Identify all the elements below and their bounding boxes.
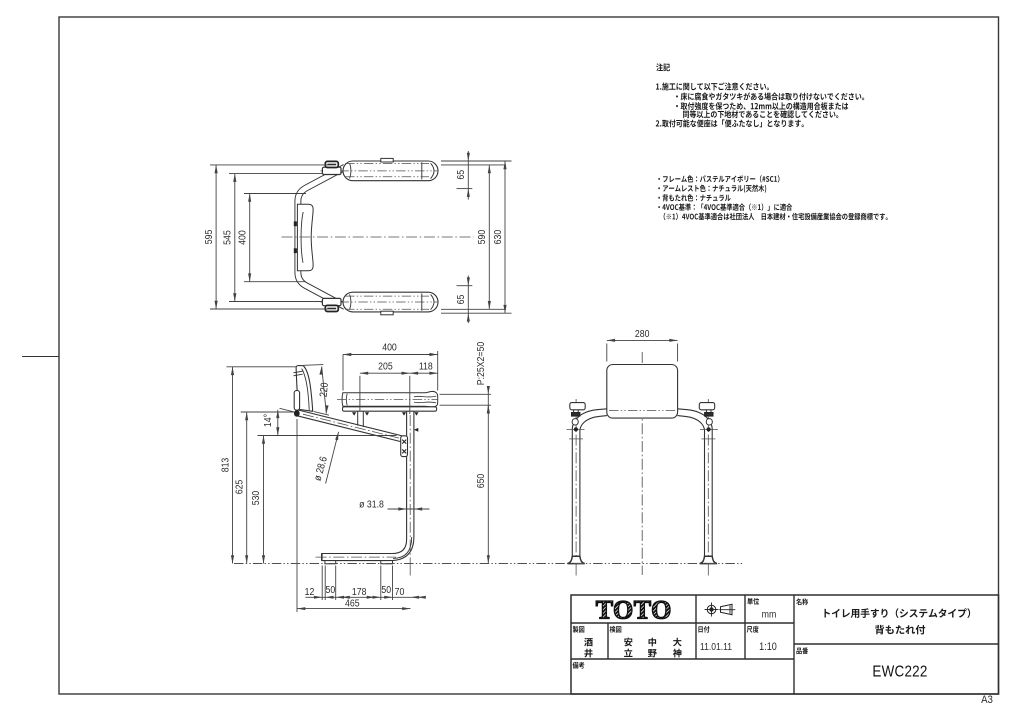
svg-text:590: 590 bbox=[476, 230, 488, 245]
svg-text:625: 625 bbox=[234, 480, 246, 495]
svg-text:650: 650 bbox=[475, 474, 487, 489]
svg-text:465: 465 bbox=[345, 598, 360, 610]
svg-text:TOTO: TOTO bbox=[596, 595, 672, 624]
svg-text:1:10: 1:10 bbox=[759, 641, 777, 653]
svg-text:70: 70 bbox=[395, 587, 405, 599]
svg-text:545: 545 bbox=[222, 230, 234, 245]
svg-text:mm: mm bbox=[762, 609, 777, 621]
svg-text:118: 118 bbox=[419, 361, 433, 373]
svg-text:178: 178 bbox=[352, 587, 367, 599]
svg-text:11.01.11: 11.01.11 bbox=[700, 640, 732, 652]
svg-text:220: 220 bbox=[318, 382, 331, 398]
svg-text:205: 205 bbox=[378, 361, 393, 373]
svg-text:A3: A3 bbox=[981, 693, 993, 706]
svg-text:630: 630 bbox=[492, 230, 504, 245]
svg-text:813: 813 bbox=[220, 458, 232, 473]
svg-text:400: 400 bbox=[382, 342, 397, 354]
svg-text:530: 530 bbox=[251, 491, 263, 506]
svg-text:50: 50 bbox=[381, 585, 391, 597]
svg-text:65: 65 bbox=[455, 170, 467, 180]
svg-text:595: 595 bbox=[203, 230, 215, 245]
svg-text:ø 31.8: ø 31.8 bbox=[359, 499, 384, 511]
svg-text:400: 400 bbox=[237, 230, 249, 245]
svg-text:P:25X2=50: P:25X2=50 bbox=[475, 342, 487, 385]
svg-text:12: 12 bbox=[305, 587, 315, 599]
svg-text:65: 65 bbox=[455, 295, 467, 305]
svg-text:EWC222: EWC222 bbox=[872, 664, 927, 681]
svg-text:50: 50 bbox=[326, 585, 336, 597]
svg-text:280: 280 bbox=[635, 329, 650, 341]
svg-text:14°: 14° bbox=[263, 414, 275, 427]
svg-text:ø 28.6: ø 28.6 bbox=[312, 455, 330, 482]
